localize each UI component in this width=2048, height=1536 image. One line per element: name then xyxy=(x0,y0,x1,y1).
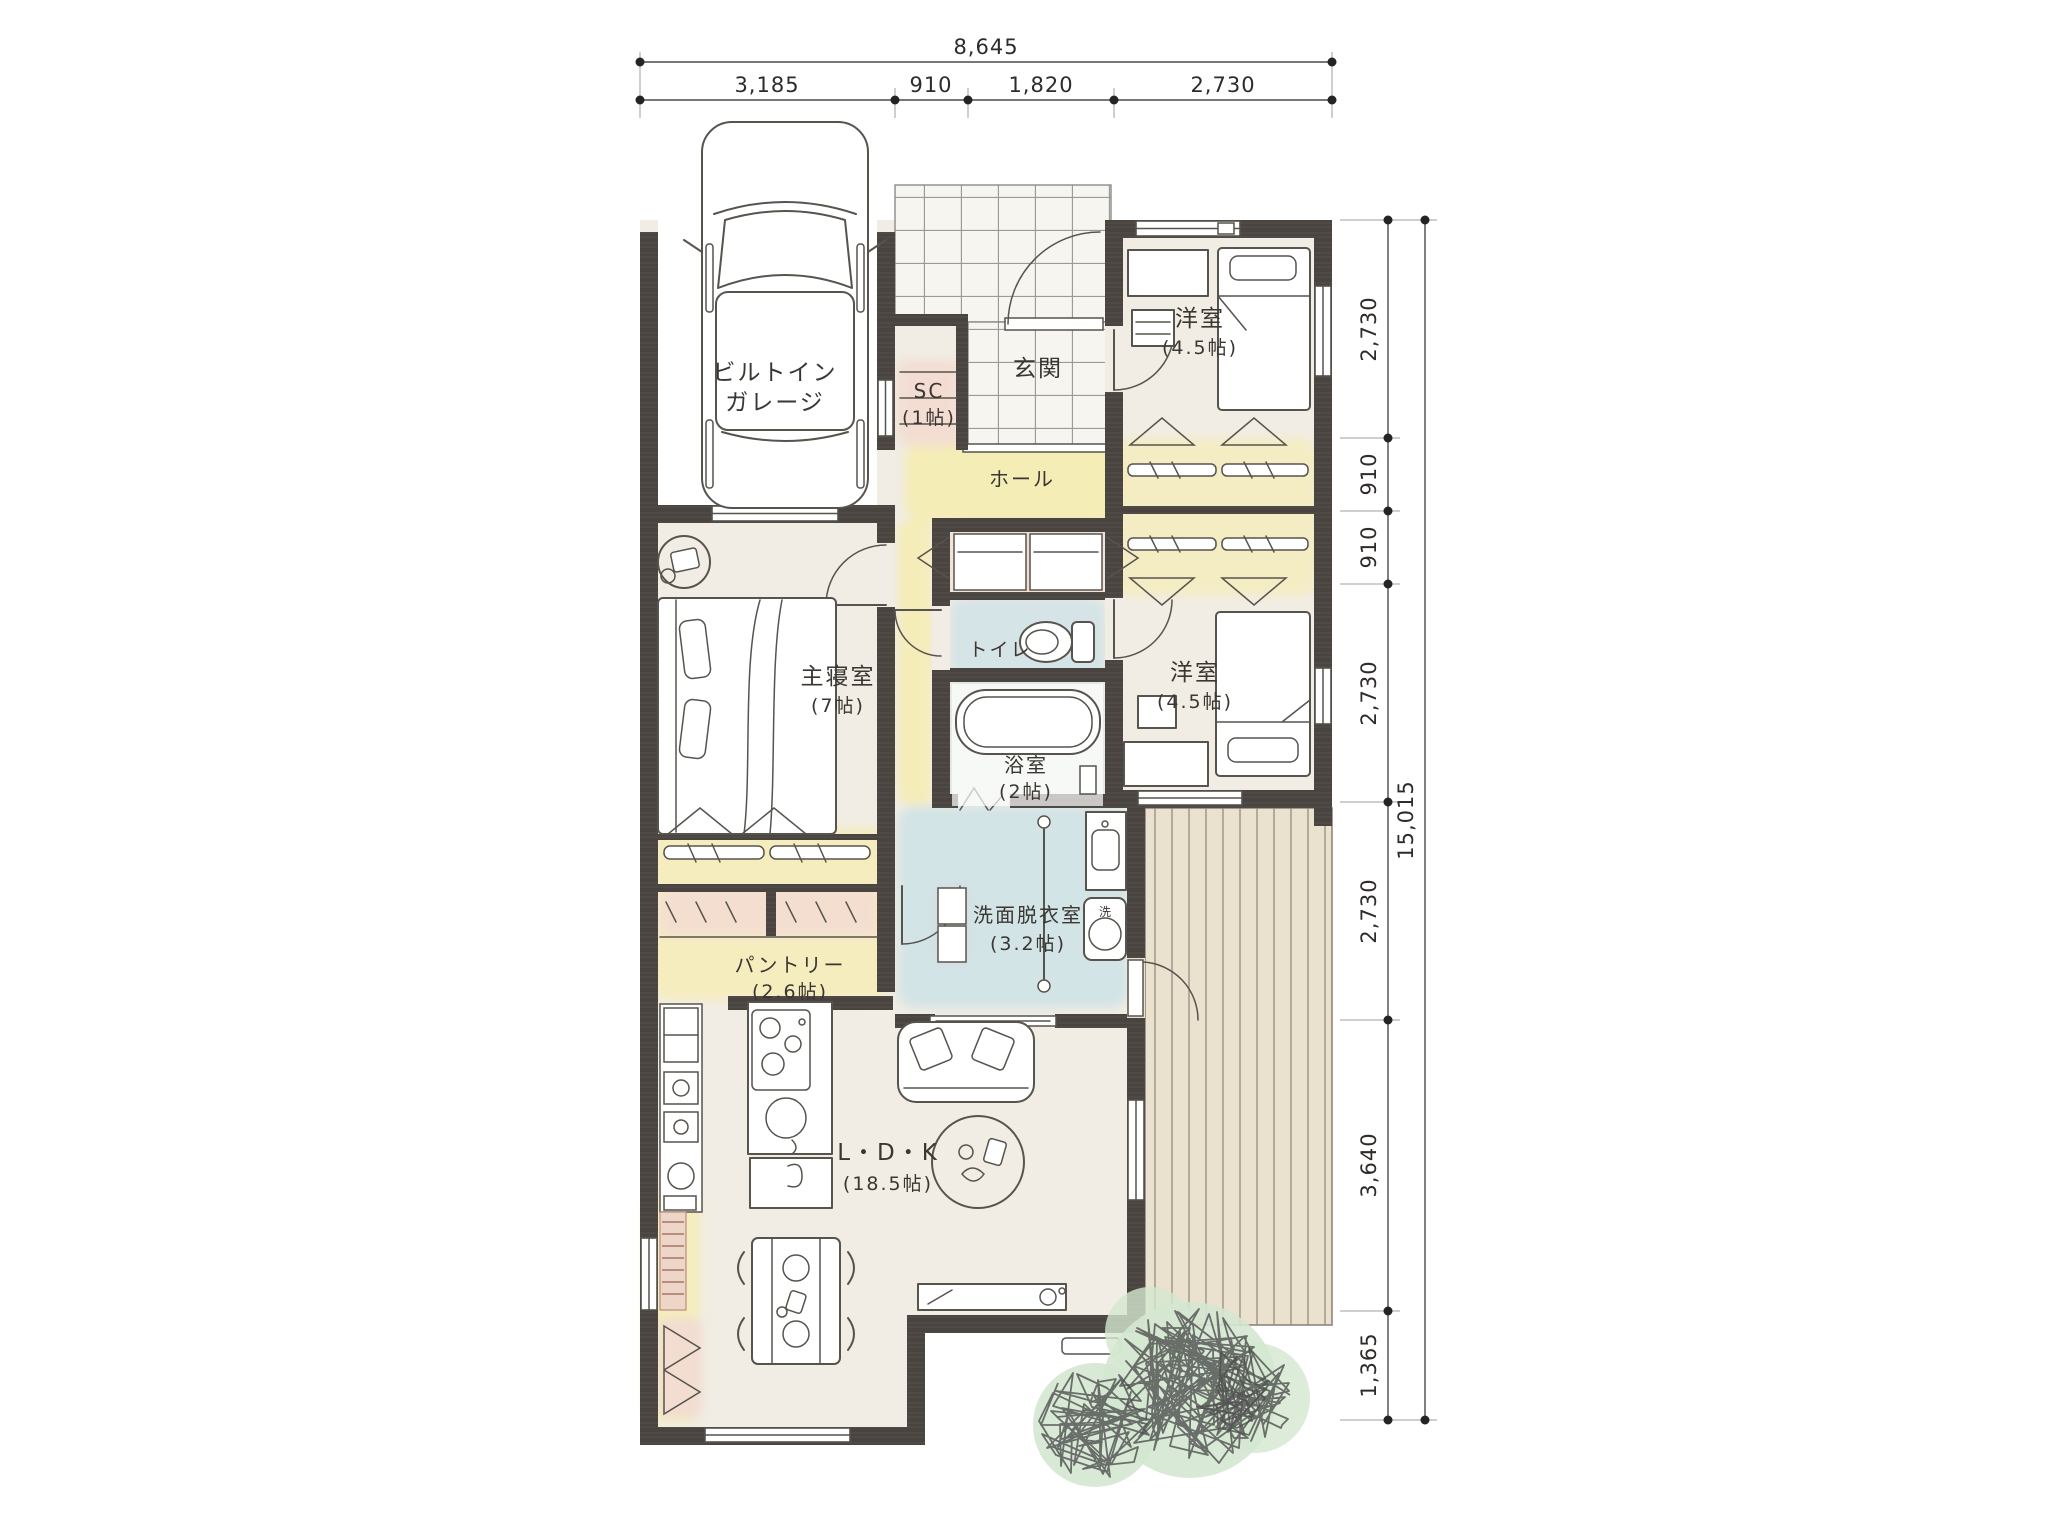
window-dining-west xyxy=(641,1238,657,1310)
dining-table-icon xyxy=(738,1238,854,1364)
window-bedroom-north-east xyxy=(1315,286,1331,376)
shoe-closet-label: SC xyxy=(914,379,945,403)
kitchen-back-counter xyxy=(660,1004,702,1212)
kitchen-island xyxy=(748,1002,832,1208)
dim-top-total: 8,645 xyxy=(953,35,1018,59)
washroom-size: (3.2帖) xyxy=(990,933,1066,955)
dim-right-4: 2,730 xyxy=(1357,660,1381,725)
hall-label: ホール xyxy=(989,467,1055,491)
linen-shelf xyxy=(938,926,966,962)
garage: ビルトイン ガレージ xyxy=(684,122,886,508)
bath-counter xyxy=(1080,766,1096,794)
shoe-closet-size: (1帖) xyxy=(902,407,956,429)
bath-label: 浴室 xyxy=(1004,753,1048,777)
ldk-size: (18.5帖) xyxy=(843,1173,933,1195)
bedroom-north-size: (4.5帖) xyxy=(1162,337,1238,359)
pantry-size: (2.6帖) xyxy=(752,981,828,1003)
garage-label-line1: ビルトイン xyxy=(713,360,838,386)
bath-room: 浴室 (2帖) xyxy=(952,684,1103,806)
ldk-label: L・D・K xyxy=(837,1140,939,1166)
dim-top-1: 3,185 xyxy=(734,73,799,97)
tv-board-icon xyxy=(918,1284,1066,1310)
window-ldk-deck xyxy=(1128,1100,1144,1200)
window-north xyxy=(1136,221,1240,236)
main-bedroom-size: (7帖) xyxy=(811,695,865,717)
dim-right-5: 2,730 xyxy=(1357,878,1381,943)
dim-top-4: 2,730 xyxy=(1190,73,1255,97)
dimension-top: 8,645 3,185 910 1,820 2,730 xyxy=(636,35,1337,118)
vanity-icon xyxy=(1086,812,1126,890)
desk-icon xyxy=(1124,742,1208,786)
pantry-label: パントリー xyxy=(735,953,846,977)
double-bed-icon xyxy=(658,598,836,834)
washroom-label: 洗面脱衣室 xyxy=(973,903,1083,927)
bedroom-north-label: 洋室 xyxy=(1175,306,1225,332)
dim-top-2: 910 xyxy=(909,73,952,97)
toilet-label: トイレ xyxy=(968,639,1031,661)
entrance-step xyxy=(963,444,1111,452)
sofa-icon xyxy=(898,1022,1034,1102)
dimension-right: 2,730 910 910 2,730 2,730 3,640 1,365 15… xyxy=(1340,216,1437,1425)
dim-right-2: 910 xyxy=(1357,452,1381,495)
desk-icon xyxy=(1128,250,1208,296)
floor-plan: ビルトイン ガレージ SC (1帖) 玄関 ホール 洋室 (4.5帖) xyxy=(0,0,2048,1536)
dim-right-6: 3,640 xyxy=(1357,1132,1381,1197)
dim-right-7: 1,365 xyxy=(1357,1332,1381,1397)
bedroom-south-label: 洋室 xyxy=(1170,660,1220,686)
bedroom-south-size: (4.5帖) xyxy=(1157,691,1233,713)
entrance-label: 玄関 xyxy=(1013,356,1063,382)
bed-icon xyxy=(1218,248,1310,410)
louver-screen xyxy=(660,1212,686,1310)
floor-plan-page: ビルトイン ガレージ SC (1帖) 玄関 ホール 洋室 (4.5帖) xyxy=(0,0,2048,1536)
dim-right-total: 15,015 xyxy=(1394,780,1418,859)
window-bedroom-south-east xyxy=(1315,668,1331,724)
car-icon xyxy=(684,122,886,508)
washer-icon: 洗 xyxy=(1084,898,1126,960)
washer-mark: 洗 xyxy=(1099,905,1111,919)
dim-top-3: 1,820 xyxy=(1008,73,1073,97)
window-ldk-south xyxy=(705,1428,850,1442)
window-shoe-closet xyxy=(878,380,893,436)
main-bedroom-label: 主寝室 xyxy=(801,664,876,690)
window-bedroom-south-s xyxy=(1138,791,1242,805)
bath-size: (2帖) xyxy=(999,781,1053,803)
bathtub-icon xyxy=(956,690,1100,754)
garage-label-line2: ガレージ xyxy=(725,390,825,416)
wood-deck xyxy=(1145,808,1332,1325)
dim-right-1: 2,730 xyxy=(1357,296,1381,361)
dim-right-3: 910 xyxy=(1357,525,1381,568)
linen-shelf xyxy=(938,888,966,924)
